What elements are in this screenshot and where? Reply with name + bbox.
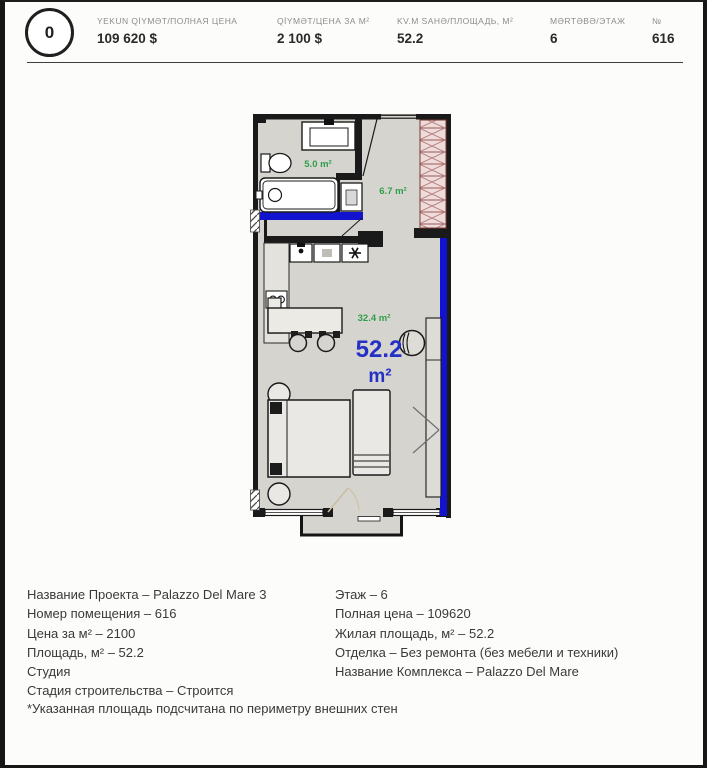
detail-complex-name: Название Комплекса – Palazzo Del Mare [335,662,618,681]
detail-area: Площадь, м² – 52.2 [27,643,267,662]
kitchen-wall [264,236,360,243]
chair1-arm-right [305,331,312,338]
bathtub [260,178,338,212]
chair-1 [290,335,307,352]
header-col-area: KV.M SAHƏ/ПЛОЩАДЬ, М² 52.2 [397,16,513,46]
detail-total-price: Полная цена – 109620 [335,604,618,623]
bathroom-area-label: 5.0 m² [304,159,331,170]
wall-post-door-right [383,508,393,517]
entry-opening-inner-line [380,118,418,119]
detail-living-area: Жилая площадь, м² – 52.2 [335,624,618,643]
badge-value: 0 [45,23,54,43]
bathroom-inner-wall-h [336,173,362,180]
detail-unit-number: Номер помещения – 616 [27,604,267,623]
unit-number-label: № [652,16,675,26]
detail-project-name: Название Проекта – Palazzo Del Mare 3 [27,585,267,604]
detail-unit-type: Студия [27,662,267,681]
wall-post-door-left [323,508,333,517]
blue-wall-horizontal [260,212,363,220]
chair2-arm-right [333,331,340,338]
total-area-unit-label: m² [368,366,391,387]
unit-number-value: 616 [652,31,675,46]
area-label: KV.M SAHƏ/ПЛОЩАДЬ, М² [397,16,513,26]
bed-pillow-2 [270,463,282,475]
detail-floor: Этаж – 6 [335,585,618,604]
detail-price-per-m2: Цена за м² – 2100 [27,624,267,643]
sink-basin [310,128,348,146]
closet [426,318,441,497]
floorplan: 5.0 m² 6.7 m² 32.4 m² 52.2 m² [250,110,462,550]
header-col-total-price: YEKUN QİYMƏT/ПОЛНАЯ ЦЕНА 109 620 $ [97,16,237,46]
wardrobe-bottom-wall [414,228,451,238]
floor-value: 6 [550,31,625,46]
details-left-column: Название Проекта – Palazzo Del Mare 3 Но… [27,585,267,701]
kitchen-sink-tap-base [297,243,305,247]
wall-top-right [416,114,451,120]
bathtub-tap-icon [256,191,262,199]
pouf-bottom [268,483,290,505]
total-price-value: 109 620 $ [97,31,237,46]
details-right-column: Этаж – 6 Полная цена – 109620 Жилая площ… [335,585,618,681]
detail-construction-stage: Стадия строительства – Строится [27,681,267,700]
header-col-price-per-m2: QİYMƏT/ЦЕНА ЗА М² 2 100 $ [277,16,370,46]
wall-left [253,114,258,510]
bed-pillow-1 [270,402,282,414]
sink-tap-icon [324,119,334,125]
total-price-label: YEKUN QİYMƏT/ПОЛНАЯ ЦЕНА [97,16,237,26]
detail-finishing: Отделка – Без ремонта (без мебели и техн… [335,643,618,662]
area-value: 52.2 [397,31,513,46]
toilet-bowl [269,154,291,173]
summary-header: 0 YEKUN QİYMƏT/ПОЛНАЯ ЦЕНА 109 620 $ QİY… [0,0,707,62]
hall-wardrobe [420,120,446,228]
wall-top [253,114,381,120]
balcony [302,516,402,535]
kitchen-sink-tap-icon [299,249,304,254]
living-area-label: 32.4 m² [358,313,391,324]
floor-label: MƏRTƏBƏ/ЭТАЖ [550,16,625,26]
kitchen-left-stub [264,220,267,237]
price-per-m2-label: QİYMƏT/ЦЕНА ЗА М² [277,16,370,26]
total-area-value-label: 52.2 [356,336,403,363]
header-divider [27,62,683,63]
hallway-area-label: 6.7 m² [379,186,406,197]
sofa [353,390,390,475]
chair-2 [318,335,335,352]
washing-machine-door [346,190,357,205]
entry-opening-outer-line [380,115,418,116]
header-col-number: № 616 [652,16,675,46]
price-per-m2-value: 2 100 $ [277,31,370,46]
bathroom-right-wall [355,119,362,175]
floorplan-svg: 5.0 m² 6.7 m² 32.4 m² 52.2 m² [250,110,462,550]
header-col-floor: MƏRTƏBƏ/ЭТАЖ 6 [550,16,625,46]
unit-count-badge: 0 [25,8,74,57]
balcony-mat [358,517,380,522]
dining-table [268,308,342,333]
dishwasher-panel [322,249,332,257]
area-footnote: *Указанная площадь подсчитана по перимет… [27,701,398,716]
